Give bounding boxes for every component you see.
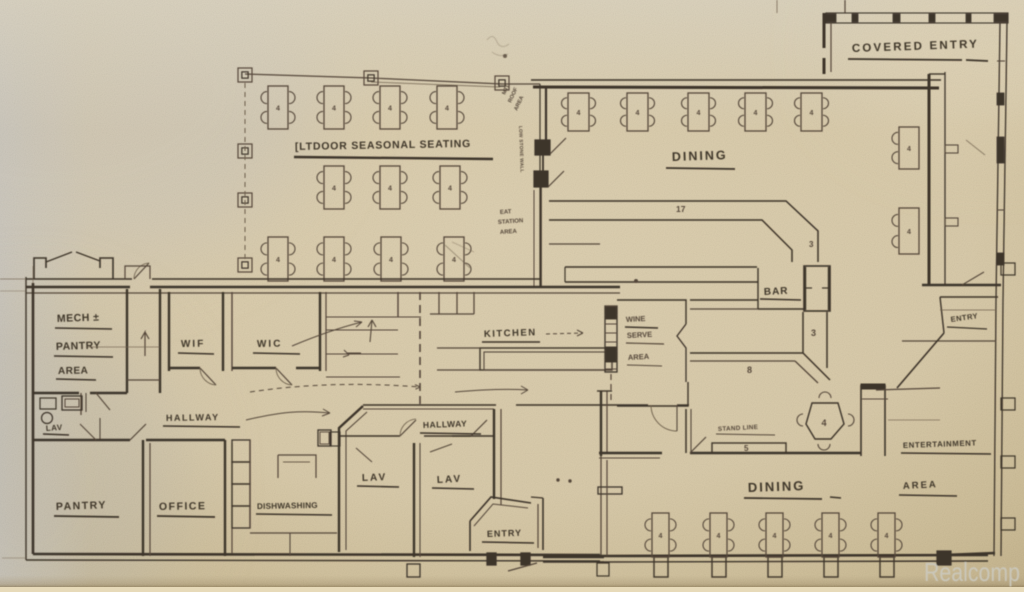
svg-text:4: 4 [332,186,336,193]
svg-text:LAV: LAV [362,472,388,484]
svg-text:AREA: AREA [628,352,650,362]
svg-text:4: 4 [885,533,889,540]
svg-text:5: 5 [744,444,749,453]
svg-text:4: 4 [332,257,336,264]
svg-text:17: 17 [676,204,686,214]
svg-text:4: 4 [821,418,826,428]
svg-text:4: 4 [388,106,392,113]
svg-text:EAT: EAT [500,209,512,216]
svg-text:HALLWAY: HALLWAY [166,412,220,423]
svg-text:AREA: AREA [58,365,89,377]
svg-text:SERVE: SERVE [627,330,653,340]
svg-text:4: 4 [697,110,701,117]
svg-text:4: 4 [907,146,911,153]
svg-text:LAV: LAV [437,474,463,486]
svg-text:AREA: AREA [500,229,518,236]
svg-text:AREA: AREA [903,479,938,492]
svg-text:4: 4 [276,106,280,113]
svg-text:4: 4 [276,257,280,264]
svg-text:OFFICE: OFFICE [159,500,207,513]
svg-text:BAR: BAR [764,286,789,298]
svg-text:3: 3 [811,328,816,338]
svg-text:4: 4 [445,106,449,113]
svg-text:4: 4 [389,257,393,264]
svg-text:4: 4 [452,257,456,264]
svg-text:DISHWASHING: DISHWASHING [257,501,318,511]
svg-text:4: 4 [810,110,814,117]
svg-text:PANTRY: PANTRY [56,339,101,353]
svg-text:WINE: WINE [626,314,646,324]
svg-text:MECH ±: MECH ± [57,312,100,325]
svg-text:4: 4 [907,229,911,236]
svg-text:WIF: WIF [181,339,206,350]
svg-text:4: 4 [388,186,392,193]
svg-text:WIC: WIC [257,339,283,350]
svg-text:PANTRY: PANTRY [56,499,107,513]
svg-text:4: 4 [332,106,336,113]
svg-text:4: 4 [829,533,833,540]
svg-text:8: 8 [747,365,752,375]
svg-text:Realcomp: Realcomp [924,557,1020,587]
svg-text:4: 4 [754,110,758,117]
svg-text:HALLWAY: HALLWAY [423,418,468,430]
svg-text:4: 4 [659,533,663,540]
svg-text:ENTRY: ENTRY [487,528,522,539]
svg-text:DINING: DINING [672,148,728,164]
svg-text:4: 4 [448,186,452,193]
svg-text:KITCHEN: KITCHEN [484,327,537,340]
svg-text:4: 4 [717,533,721,540]
svg-text:DINING: DINING [748,478,806,495]
svg-text:3: 3 [809,240,814,249]
svg-text:4: 4 [773,533,777,540]
svg-text:4: 4 [577,110,581,117]
svg-text:4: 4 [636,110,640,117]
svg-text:LAV: LAV [46,423,64,433]
